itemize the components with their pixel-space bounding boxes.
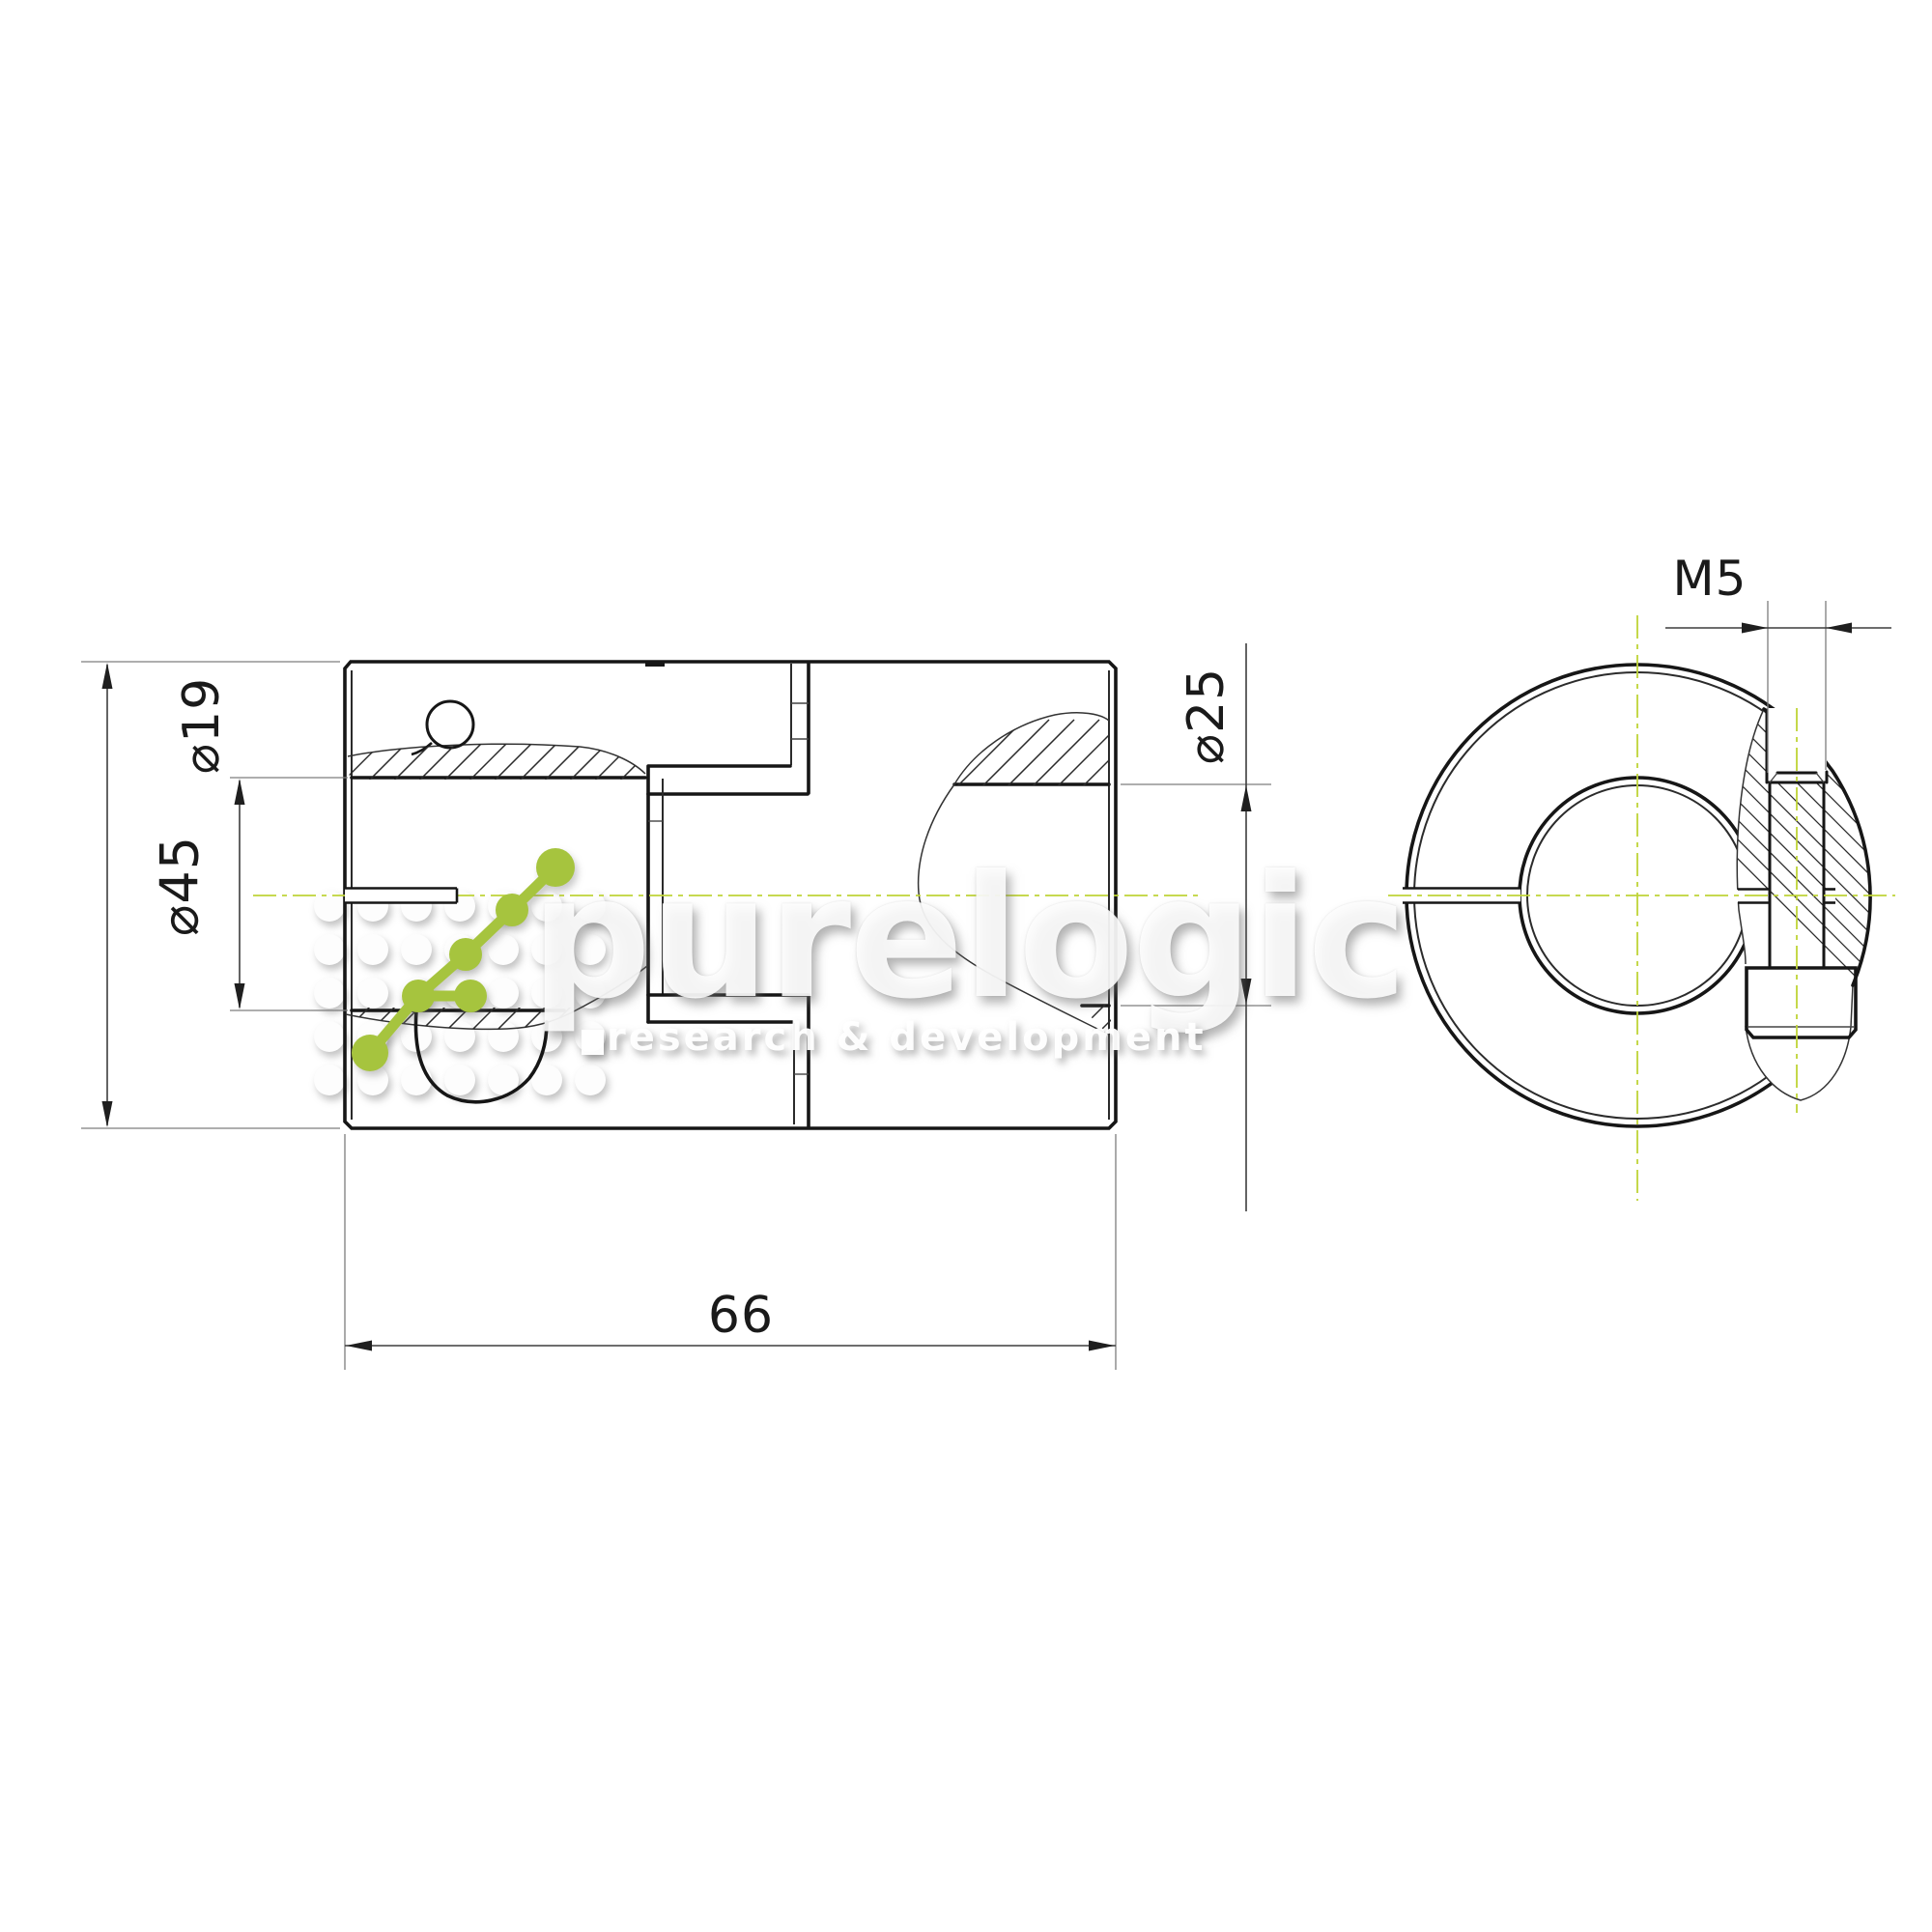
dim-label-d19: ⌀19 bbox=[173, 677, 231, 774]
end-view bbox=[1388, 615, 1932, 1201]
dim-label-d25: ⌀25 bbox=[1178, 668, 1236, 764]
hatch-bottom-left bbox=[338, 1000, 603, 1038]
outer-diameter-circle bbox=[1406, 665, 1868, 1126]
drawing-sheet: ⌀45 ⌀19 ⌀25 66 M5 purelogic research & d… bbox=[0, 0, 1932, 1932]
watermark: purelogic research & development bbox=[0, 0, 1932, 1932]
hatch-right-lens bbox=[942, 720, 1175, 802]
clamp-screw bbox=[1747, 708, 1856, 1037]
bore-edges bbox=[352, 778, 1109, 1010]
hatch-top-left bbox=[340, 740, 686, 784]
watermark-dot-grid bbox=[0, 0, 1932, 1932]
bore-circle bbox=[1520, 778, 1755, 1013]
hatch-right-corner bbox=[1076, 1003, 1134, 1049]
brand-wordmark: purelogic bbox=[530, 854, 1406, 1023]
jaw-seam bbox=[648, 664, 809, 1126]
relief-holes bbox=[412, 701, 547, 1102]
screw-head bbox=[1747, 968, 1856, 1037]
hatch-screw-section bbox=[1546, 667, 1932, 1130]
dimensions bbox=[81, 601, 1891, 1370]
watermark-dots bbox=[314, 891, 606, 1095]
clamp-slit-end bbox=[1400, 889, 1520, 903]
brand-logo-icon bbox=[0, 0, 1932, 1932]
dim-label-m5: M5 bbox=[1673, 551, 1747, 607]
dim-label-66: 66 bbox=[708, 1287, 774, 1345]
break-lines bbox=[346, 713, 1109, 1035]
body-outline bbox=[345, 662, 1116, 1128]
clamp-slit-side bbox=[345, 889, 457, 903]
brand-tagline: research & development bbox=[607, 1018, 1207, 1057]
side-view bbox=[253, 662, 1201, 1128]
dim-label-d45: ⌀45 bbox=[150, 836, 211, 936]
local-section bbox=[1737, 709, 1870, 1100]
engineering-drawing bbox=[0, 0, 1932, 1932]
screw-shank bbox=[1770, 782, 1824, 968]
tagline-bullet bbox=[582, 1030, 604, 1055]
